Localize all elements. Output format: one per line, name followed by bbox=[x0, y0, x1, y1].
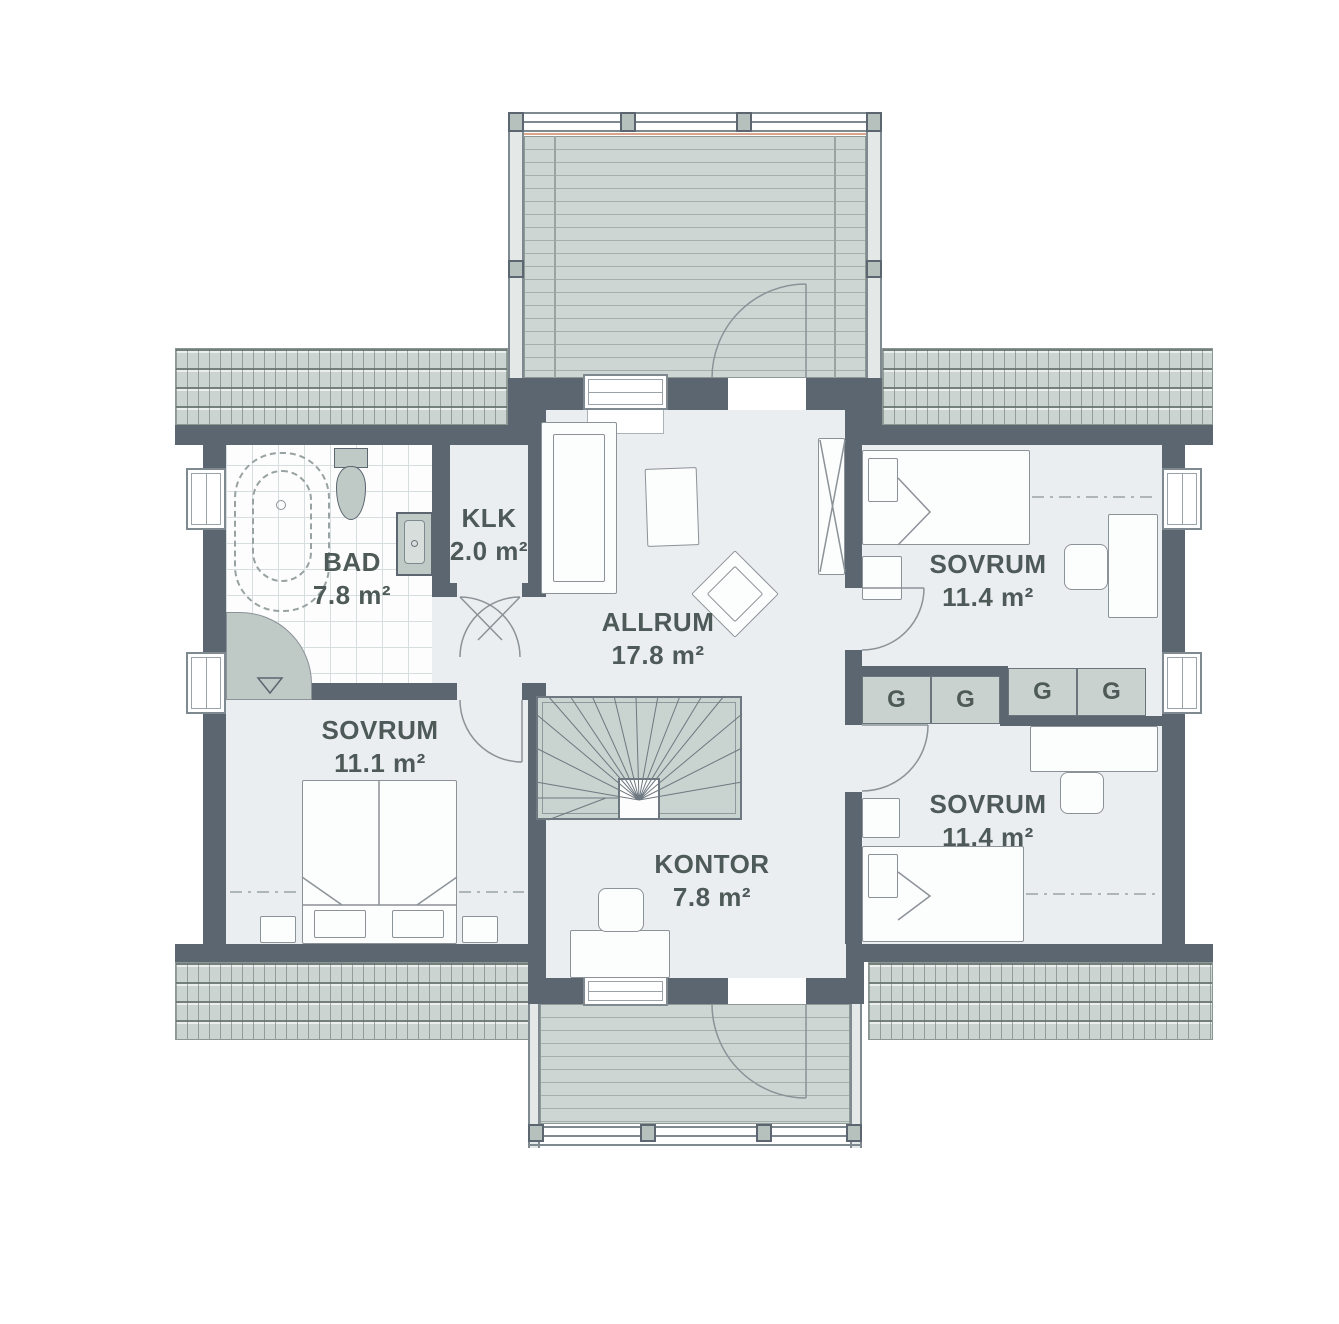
wardrobe-label: G bbox=[887, 686, 906, 714]
railing-post bbox=[508, 260, 524, 278]
window bbox=[186, 468, 226, 530]
balcony-bottom bbox=[528, 1004, 862, 1148]
office-chair bbox=[1064, 544, 1108, 590]
room-label-sovrum-top-right: SOVRUM 11.4 m² bbox=[929, 548, 1046, 614]
room-area: 7.8 m² bbox=[654, 881, 769, 914]
floor-plan: G G G G bbox=[0, 0, 1339, 1324]
wardrobe-label: G bbox=[956, 686, 975, 714]
office-chair bbox=[1060, 772, 1104, 814]
wall-segment bbox=[175, 425, 508, 445]
nightstand bbox=[862, 556, 902, 600]
wardrobe-g: G bbox=[1077, 668, 1146, 716]
wall-segment bbox=[846, 944, 864, 1004]
window bbox=[1162, 468, 1202, 530]
railing-post bbox=[528, 1124, 544, 1142]
room-name: BAD bbox=[313, 546, 391, 579]
desk bbox=[570, 930, 670, 978]
wall-segment bbox=[806, 378, 882, 410]
room-label-bad: BAD 7.8 m² bbox=[313, 546, 391, 612]
window bbox=[186, 652, 226, 714]
wall-segment bbox=[528, 944, 546, 1004]
room-name: KLK bbox=[450, 502, 528, 535]
wardrobe-g: G bbox=[862, 676, 931, 724]
washbasin-drain bbox=[411, 540, 418, 547]
bathtub-basin bbox=[252, 470, 312, 582]
sofa-cushion bbox=[553, 434, 605, 582]
wall-segment bbox=[1004, 716, 1162, 726]
wall-segment bbox=[432, 445, 450, 583]
wall-segment bbox=[668, 978, 728, 1004]
roof-bottom-right bbox=[868, 962, 1213, 1040]
room-name: SOVRUM bbox=[929, 788, 1046, 821]
wall-segment bbox=[1000, 666, 1008, 726]
balcony-top-deck bbox=[524, 136, 866, 378]
roof-bottom-left bbox=[175, 962, 538, 1040]
balcony-top-deck-joint bbox=[834, 136, 836, 378]
wall-segment bbox=[848, 944, 1213, 962]
toilet-tank bbox=[334, 448, 368, 468]
desk bbox=[1108, 514, 1158, 618]
railing-post bbox=[736, 112, 752, 132]
wall-segment bbox=[508, 378, 583, 410]
staircase-newel bbox=[618, 778, 660, 820]
room-area: 7.8 m² bbox=[313, 579, 391, 612]
wall-segment bbox=[1162, 445, 1185, 468]
wall-segment bbox=[845, 410, 882, 445]
wardrobe-g: G bbox=[1008, 668, 1077, 716]
pillow bbox=[314, 910, 366, 938]
window bbox=[583, 976, 668, 1006]
room-label-kontor: KONTOR 7.8 m² bbox=[654, 848, 769, 914]
railing-post bbox=[866, 260, 882, 278]
pillow bbox=[868, 458, 898, 502]
room-name: SOVRUM bbox=[929, 548, 1046, 581]
nightstand bbox=[260, 916, 296, 943]
balcony-bottom-deck bbox=[540, 1004, 850, 1124]
wall-segment bbox=[845, 445, 862, 588]
coffee-table bbox=[645, 467, 700, 547]
wardrobe-label: G bbox=[1033, 678, 1052, 706]
tv-bench bbox=[818, 438, 845, 575]
railing-post bbox=[866, 112, 882, 132]
room-label-allrum: ALLRUM 17.8 m² bbox=[602, 606, 715, 672]
room-area: 17.8 m² bbox=[602, 639, 715, 672]
wall-segment bbox=[203, 530, 226, 652]
wardrobe-g: G bbox=[931, 676, 1000, 724]
room-label-sovrum-left: SOVRUM 11.1 m² bbox=[321, 714, 438, 780]
balcony-top-deck-joint bbox=[554, 136, 556, 378]
wall-segment bbox=[668, 378, 728, 410]
railing-post bbox=[508, 112, 524, 132]
room-area: 11.1 m² bbox=[321, 747, 438, 780]
wall-segment bbox=[432, 583, 457, 597]
nightstand bbox=[862, 798, 900, 838]
window bbox=[1162, 652, 1202, 714]
wall-segment bbox=[1162, 530, 1185, 652]
room-name: SOVRUM bbox=[321, 714, 438, 747]
railing-post bbox=[846, 1124, 862, 1142]
pillow bbox=[868, 854, 898, 898]
desk bbox=[1030, 726, 1158, 772]
wall-segment bbox=[1162, 714, 1185, 944]
wall-segment bbox=[203, 445, 226, 468]
railing-post bbox=[640, 1124, 656, 1142]
room-label-sovrum-bottom-right: SOVRUM 11.4 m² bbox=[929, 788, 1046, 854]
room-name: KONTOR bbox=[654, 848, 769, 881]
balcony-top-accent-line bbox=[524, 133, 866, 135]
room-area: 11.4 m² bbox=[929, 821, 1046, 854]
office-chair bbox=[598, 888, 644, 932]
nightstand bbox=[462, 916, 498, 943]
railing-post bbox=[756, 1124, 772, 1142]
railing-post bbox=[620, 112, 636, 132]
wall-segment bbox=[845, 666, 1004, 676]
window bbox=[583, 374, 668, 410]
wall-segment bbox=[845, 792, 862, 944]
wall-segment bbox=[882, 425, 1213, 445]
room-label-klk: KLK 2.0 m² bbox=[450, 502, 528, 568]
bathtub-drain bbox=[276, 500, 286, 510]
balcony-bottom-railing bbox=[528, 1126, 862, 1148]
room-area: 11.4 m² bbox=[929, 581, 1046, 614]
balcony-top-railing bbox=[508, 112, 882, 134]
wall-segment bbox=[203, 714, 226, 944]
wall-segment bbox=[175, 944, 538, 962]
room-name: ALLRUM bbox=[602, 606, 715, 639]
room-area: 2.0 m² bbox=[450, 535, 528, 568]
wardrobe-label: G bbox=[1102, 678, 1121, 706]
roof-top-left bbox=[175, 348, 508, 425]
roof-top-right bbox=[882, 348, 1213, 425]
wall-segment bbox=[845, 650, 862, 725]
pillow bbox=[392, 910, 444, 938]
